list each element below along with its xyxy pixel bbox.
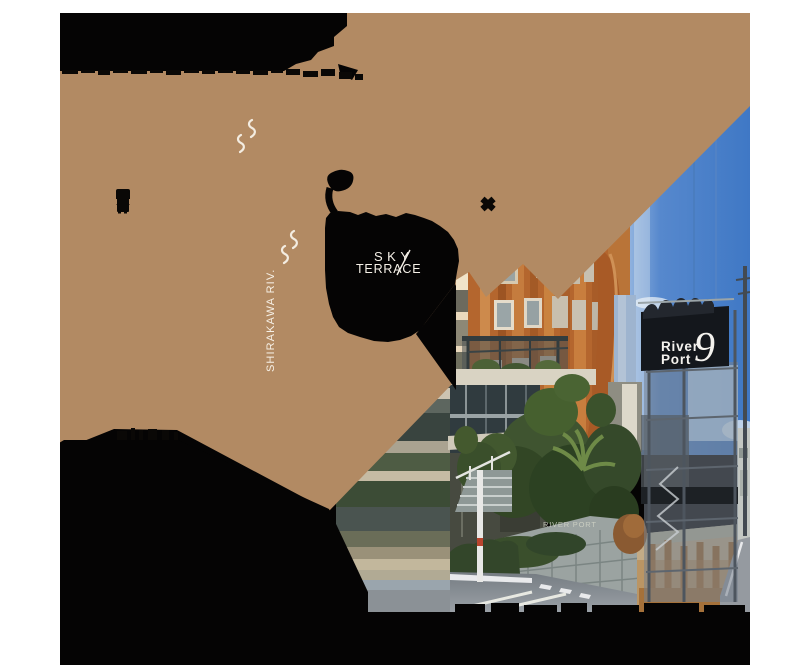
svg-text:9: 9 bbox=[694, 325, 715, 371]
svg-text:TERRACE: TERRACE bbox=[356, 262, 421, 276]
svg-text:RIVER PORT: RIVER PORT bbox=[543, 520, 597, 529]
svg-text:Port: Port bbox=[661, 352, 691, 367]
svg-text:SHIRAKAWA RIV.: SHIRAKAWA RIV. bbox=[265, 269, 277, 372]
